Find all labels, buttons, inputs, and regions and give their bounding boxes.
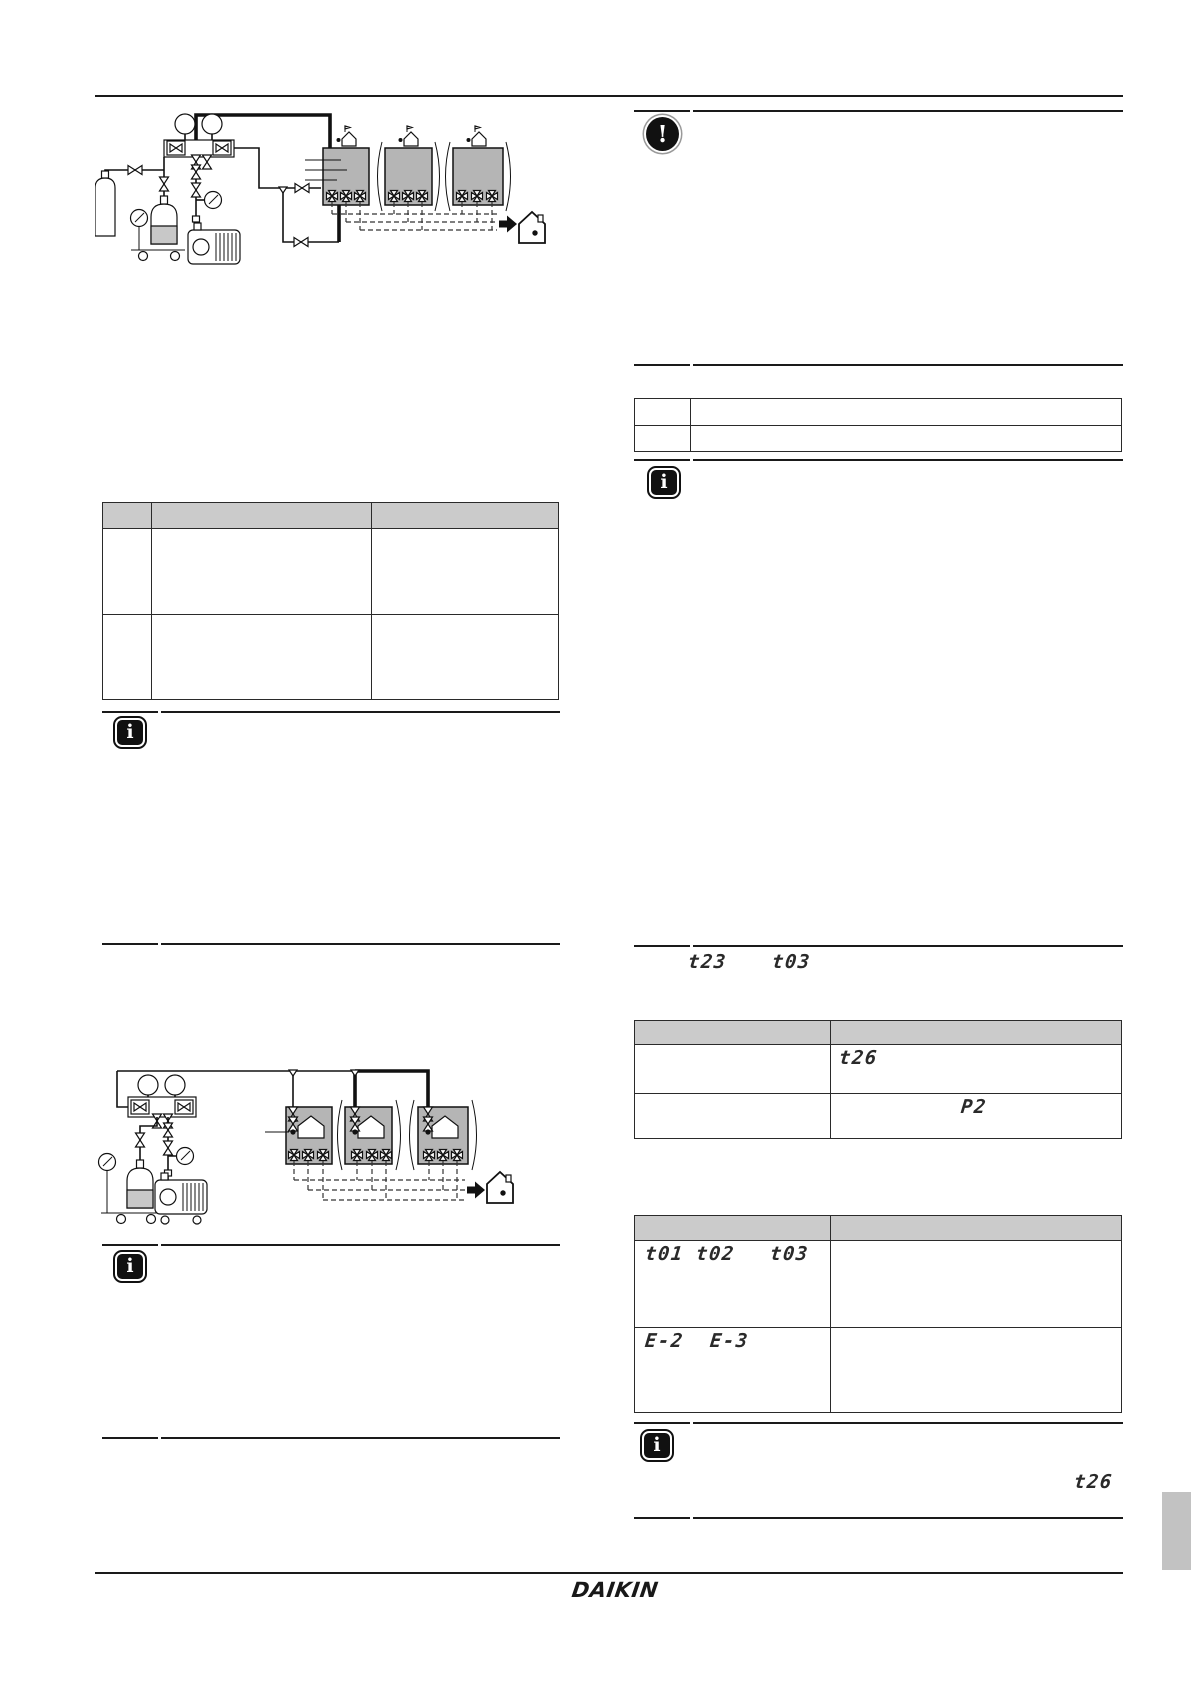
table-cell bbox=[831, 1328, 1122, 1413]
display-code-e2: E-2 bbox=[644, 1332, 685, 1351]
display-code-t26: t26 bbox=[838, 1049, 879, 1068]
table-cell bbox=[372, 615, 559, 700]
table-cell bbox=[103, 615, 152, 700]
display-code-t23: t23 bbox=[687, 953, 728, 972]
checking-table: t26 P2 bbox=[634, 1020, 1122, 1139]
table-cell bbox=[103, 529, 152, 615]
display-code-p2: P2 bbox=[960, 1098, 988, 1117]
gauge-manifold bbox=[128, 1075, 196, 1128]
section-divider bbox=[634, 1422, 1123, 1424]
table-cell bbox=[635, 1094, 831, 1139]
table-header-cell bbox=[831, 1021, 1122, 1045]
section-divider bbox=[102, 943, 560, 945]
unit-1 bbox=[305, 126, 369, 205]
legend-table bbox=[634, 398, 1122, 452]
table-cell bbox=[691, 399, 1122, 426]
section-divider bbox=[634, 1517, 1123, 1519]
section-divider bbox=[102, 1437, 560, 1439]
spec-table bbox=[102, 502, 559, 700]
table-cell bbox=[691, 426, 1122, 452]
table-header-cell bbox=[831, 1216, 1122, 1241]
house-icon bbox=[519, 212, 545, 243]
table-cell bbox=[635, 426, 691, 452]
arrow-icon bbox=[467, 1182, 485, 1199]
unit-2 bbox=[378, 126, 440, 211]
display-code-t02: t02 bbox=[695, 1245, 736, 1264]
gauge-manifold bbox=[164, 114, 234, 169]
unit-3 bbox=[446, 126, 511, 211]
table-header-cell bbox=[152, 503, 372, 529]
notice-icon: ! bbox=[646, 117, 679, 151]
charging-piping-diagram bbox=[95, 1058, 565, 1248]
unit-2 bbox=[338, 1100, 401, 1170]
table-cell bbox=[831, 1241, 1122, 1328]
table-header-cell bbox=[635, 1216, 831, 1241]
table-cell: P2 bbox=[831, 1094, 1122, 1139]
brand-logo: DAIKIN bbox=[570, 1578, 660, 1602]
unit-1 bbox=[265, 1107, 332, 1164]
arrow-icon bbox=[499, 216, 517, 233]
vacuum-pump bbox=[155, 1117, 207, 1224]
unit-3 bbox=[410, 1100, 477, 1170]
display-code-t01: t01 bbox=[644, 1245, 685, 1264]
page-top-rule bbox=[95, 95, 1123, 97]
error-codes-table: t01 t02 t03 E-2 E-3 bbox=[634, 1215, 1122, 1413]
info-icon: i bbox=[640, 1429, 674, 1462]
section-divider bbox=[102, 711, 560, 713]
note-code-t26: t26 bbox=[1073, 1473, 1114, 1492]
dashed-field-piping bbox=[294, 1161, 465, 1200]
section-divider bbox=[634, 459, 1123, 461]
display-code-t03: t03 bbox=[771, 953, 812, 972]
table-cell: t01 t02 t03 bbox=[635, 1241, 831, 1328]
section-divider bbox=[634, 364, 1123, 366]
table-cell bbox=[152, 529, 372, 615]
info-icon: i bbox=[647, 466, 681, 499]
table-cell bbox=[635, 1045, 831, 1094]
vacuum-piping-diagram bbox=[95, 100, 565, 265]
refrigerant-cylinder-scale bbox=[131, 177, 186, 261]
section-divider bbox=[634, 945, 1123, 947]
table-cell bbox=[372, 529, 559, 615]
table-header-cell bbox=[372, 503, 559, 529]
dashed-field-piping bbox=[332, 202, 497, 230]
table-cell: E-2 E-3 bbox=[635, 1328, 831, 1413]
display-code-e3: E-3 bbox=[709, 1332, 750, 1351]
page-edge-tab bbox=[1162, 1492, 1191, 1570]
display-code-t03: t03 bbox=[769, 1245, 810, 1264]
table-cell bbox=[152, 615, 372, 700]
table-header-cell bbox=[103, 503, 152, 529]
info-icon: i bbox=[113, 1250, 147, 1283]
table-cell bbox=[635, 399, 691, 426]
section-divider bbox=[102, 1244, 560, 1246]
section-divider bbox=[634, 110, 1123, 112]
manual-page: i bbox=[0, 0, 1191, 1684]
house-icon bbox=[487, 1172, 513, 1203]
table-header-cell bbox=[635, 1021, 831, 1045]
footer-rule bbox=[95, 1572, 1123, 1574]
table-cell: t26 bbox=[831, 1045, 1122, 1094]
info-icon: i bbox=[113, 716, 147, 749]
